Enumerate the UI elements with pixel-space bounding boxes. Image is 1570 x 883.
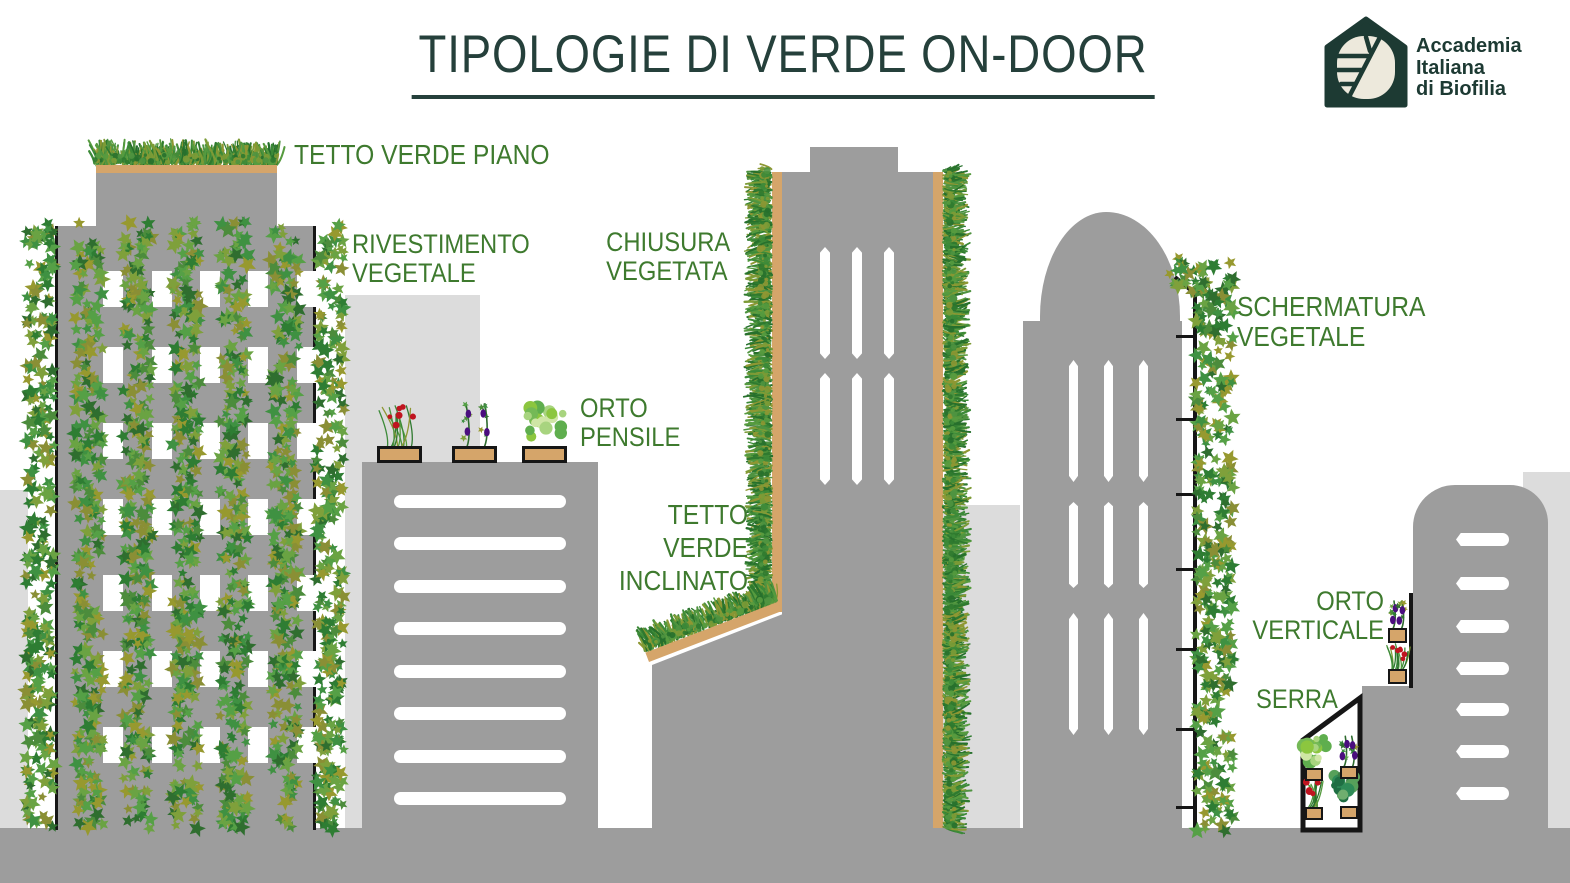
vertical-garden-planter [1388,669,1407,684]
label-line: ORTO [1250,587,1384,616]
vertical-garden-plant-eggplant [1386,598,1408,628]
label-line: VEGETALE [1237,322,1425,352]
label-line: CHIUSURA [606,228,726,257]
window [1176,648,1195,651]
window [1176,806,1195,809]
label-hanging-garden: ORTO PENSILE [580,394,680,452]
window [394,665,566,678]
window [152,575,172,611]
window [1139,360,1148,482]
window [852,247,862,359]
window [103,651,123,687]
logo-line: di Biofilia [1416,79,1522,101]
greenhouse-planter [1340,806,1358,819]
window [820,247,830,359]
window [248,271,268,307]
window [1456,620,1509,633]
window [200,575,220,611]
window [200,423,220,459]
house-leaf-mosaic-icon [1324,16,1408,108]
window [200,651,220,687]
greenhouse-planter [1305,768,1323,781]
background-building-far-left [0,490,28,830]
greenhouse-planter [1305,807,1323,820]
building-vegetal-cladding [55,226,316,830]
flat-green-roof-soil-band [96,165,277,173]
window [297,423,317,459]
window [297,271,317,307]
window [297,575,317,611]
vertical-garden-pole [1409,593,1413,688]
closure-soil-band-left [772,172,782,612]
page-title: TIPOLOGIE DI VERDE ON-DOOR [412,24,1155,99]
window [200,347,220,383]
vertical-garden-plant-flowers [1386,641,1408,669]
window [200,499,220,535]
background-building-center [935,505,1020,830]
window [297,727,317,763]
roof-planter [452,446,497,463]
label-line: VEGETATA [606,257,726,286]
logo-line: Italiana [1416,58,1522,80]
window [1456,533,1509,546]
window [103,575,123,611]
window [394,537,566,550]
window [820,373,830,485]
label-vegetated-closure: CHIUSURA VEGETATA [606,228,726,286]
window [248,575,268,611]
screening-trellis-pole [1193,294,1197,830]
label-vegetal-cladding: RIVESTIMENTO VEGETALE [352,230,530,288]
building-cladding-penthouse [96,173,277,228]
screening-vine-column [1196,262,1233,832]
logo-wordmark: Accademia Italiana di Biofilia [1416,36,1522,101]
window [1104,613,1113,735]
window [394,750,566,763]
window [200,727,220,763]
window [394,707,566,720]
vine-column [316,222,344,830]
window [248,347,268,383]
window [200,271,220,307]
window [1176,728,1195,731]
cladding-trellis-line-left [55,226,58,830]
roof-planter [522,446,567,463]
window [152,727,172,763]
window [1139,502,1148,588]
window [394,495,566,508]
label-greenhouse: SERRA [1256,685,1338,714]
window [394,580,566,593]
window [152,651,172,687]
window [103,271,123,307]
window [103,423,123,459]
label-line: SCHERMATURA [1237,292,1425,322]
window [248,727,268,763]
infographic-green-typologies: TIPOLOGIE DI VERDE ON-DOOR TETTO VERDE P… [0,0,1570,883]
window [103,727,123,763]
label-vertical-garden: ORTO VERTICALE [1250,587,1384,645]
window [1069,613,1078,735]
window [1456,787,1509,800]
flat-green-roof-grass [94,136,278,166]
window [1069,502,1078,588]
window [884,373,894,485]
window [394,622,566,635]
right-building-annex [1362,686,1413,830]
label-flat-green-roof: TETTO VERDE PIANO [294,140,550,169]
label-line: ORTO [580,394,680,423]
window [103,347,123,383]
window [248,423,268,459]
label-line: VEGETALE [352,259,530,288]
window [297,499,317,535]
label-line: TETTO [616,498,748,531]
window [297,651,317,687]
planter-plant-bush [520,404,568,446]
vine-column [26,222,54,830]
ground [0,828,1570,883]
tower-vegetal-screening-dome [1040,212,1180,327]
window [852,373,862,485]
window [1456,662,1509,675]
window [152,499,172,535]
window [1176,493,1195,496]
window [248,499,268,535]
window [1139,613,1148,735]
window [1456,577,1509,590]
roof-planter [377,446,422,463]
tower-vegetal-screening [1023,321,1182,830]
window [297,347,317,383]
window [884,247,894,359]
window [248,651,268,687]
window [152,423,172,459]
label-line: RIVESTIMENTO [352,230,530,259]
window [1176,335,1195,338]
label-inclined-green-roof: TETTO VERDE INCLINATO [616,498,748,597]
vertical-garden-planter [1388,628,1407,643]
label-vegetal-screening: SCHERMATURA VEGETALE [1237,292,1425,352]
building-hanging-garden [362,462,598,830]
window [1176,568,1195,571]
closure-soil-band-right [933,172,943,828]
window [152,347,172,383]
label-line: INCLINATO [616,564,748,597]
window [1104,360,1113,482]
window [1456,745,1509,758]
window [152,271,172,307]
label-line: PENSILE [580,423,680,452]
window [1176,418,1195,421]
label-line: VERDE [616,531,748,564]
window [1104,502,1113,588]
greenhouse-planter [1340,766,1358,779]
window [394,792,566,805]
window [1069,360,1078,482]
logo-line: Accademia [1416,36,1522,58]
label-line: VERTICALE [1250,616,1384,645]
window [1456,703,1509,716]
window [103,499,123,535]
